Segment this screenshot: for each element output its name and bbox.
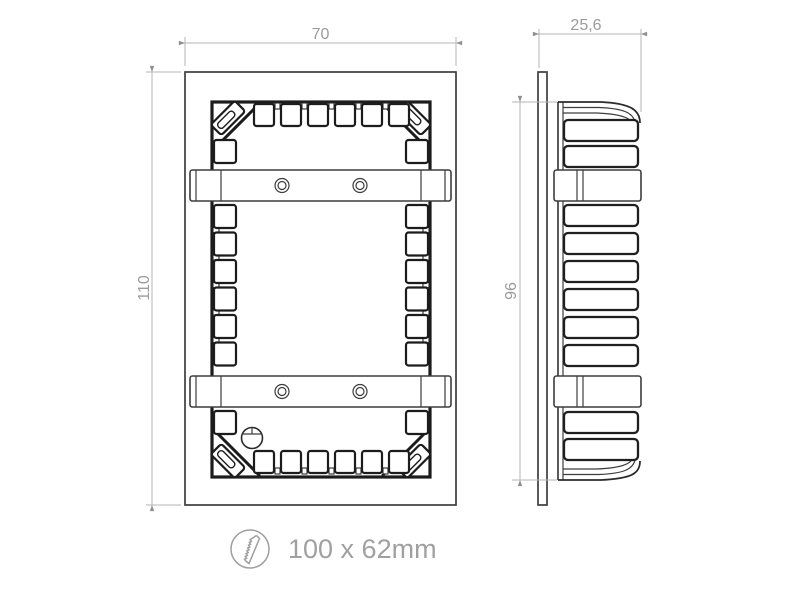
body-height-label: 96 [503,282,520,300]
cutout-size-label: 100 x 62mm [288,534,437,564]
clip-frame [212,102,430,477]
corner-clip-top-left [211,101,246,136]
dimension-body-height: 96 [503,102,557,480]
side-depth-label: 25,6 [570,17,601,34]
mounting-rail-bottom [190,376,451,407]
mounting-clips-top [254,103,409,126]
side-rail-top [554,170,641,201]
front-view [185,72,456,505]
mounting-clips-bottom [254,451,409,474]
front-height-label: 110 [136,275,153,301]
cutout-note: 100 x 62mm [231,530,437,568]
side-rail-bottom [554,376,641,407]
saw-blade-icon [231,530,269,568]
cable-knockout [242,428,263,449]
corner-clip-bottom-left [211,444,246,479]
technical-drawing-page: 70 110 25,6 96 100 x 62mm [0,0,800,600]
front-width-label: 70 [312,26,330,43]
dimension-front-height: 110 [136,72,181,505]
corner-chamfers [214,104,428,475]
side-flange [538,72,547,505]
side-view [538,72,641,505]
mounting-rail-top [190,170,451,201]
dimension-front-width: 70 [185,26,456,66]
technical-drawing: 70 110 25,6 96 100 x 62mm [0,0,800,600]
dimension-side-depth: 25,6 [539,17,641,112]
